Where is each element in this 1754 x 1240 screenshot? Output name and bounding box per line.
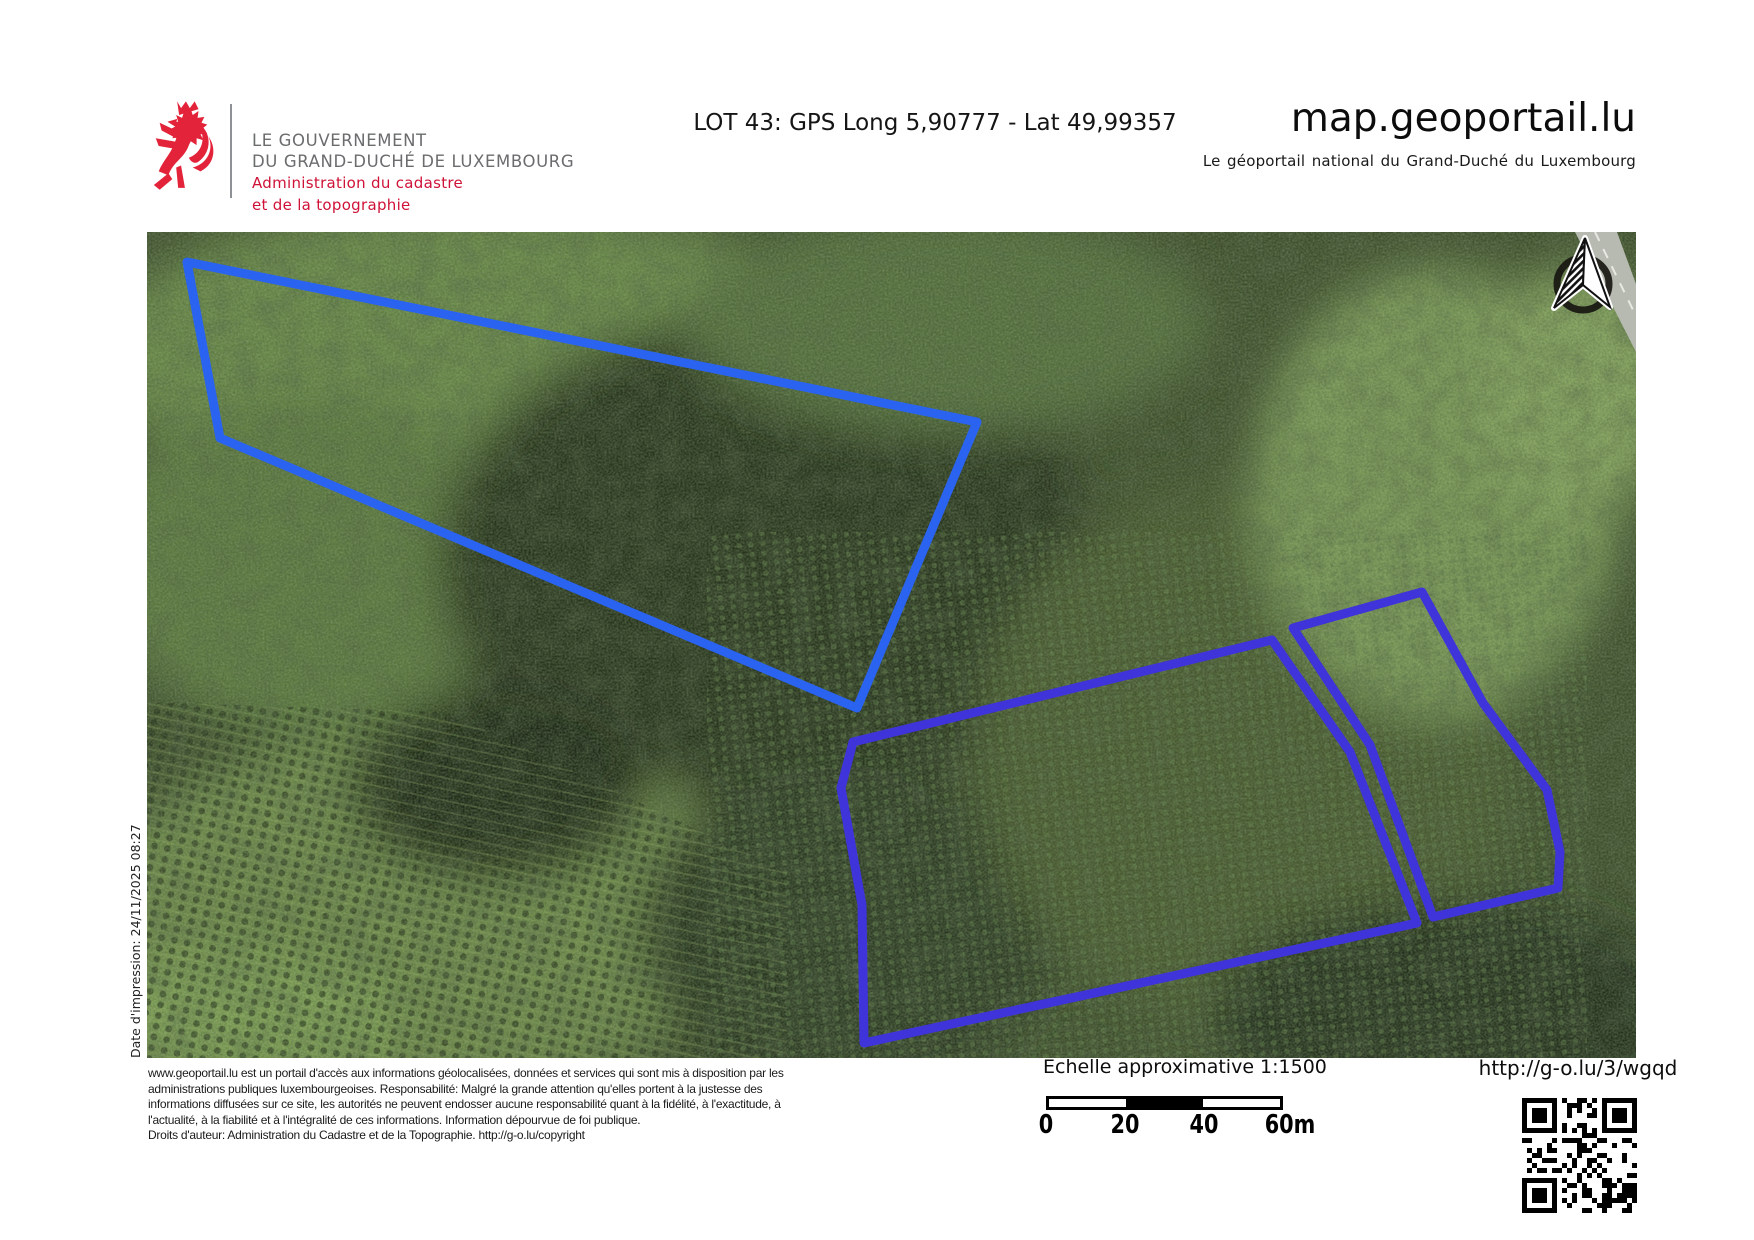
scale-tick-60m: 60m	[1258, 1110, 1322, 1140]
logo-divider	[230, 104, 232, 198]
disclaimer-text: www.geoportail.lu est un portail d'accès…	[148, 1066, 868, 1144]
print-date-label: Date d'impression: 24/11/2025 08:27	[128, 824, 143, 1058]
aerial-map	[147, 232, 1636, 1058]
scale-tick-0: 0	[1014, 1110, 1078, 1140]
disclaimer-line: administrations publiques luxembourgeois…	[148, 1082, 868, 1098]
qr-code	[1522, 1098, 1637, 1213]
share-url: http://g-o.lu/3/wgqd	[1440, 1056, 1716, 1080]
page-title: LOT 43: GPS Long 5,90777 - Lat 49,99357	[600, 110, 1270, 136]
disclaimer-line: l'actualité, à la fiabilité et à l'intég…	[148, 1113, 868, 1129]
gov-dept-line1: Administration du cadastre	[252, 174, 463, 192]
scale-tick-40: 40	[1172, 1110, 1236, 1140]
scale-bar	[1046, 1096, 1283, 1110]
gov-dept-line2: et de la topographie	[252, 196, 411, 214]
gov-name-line1: LE GOUVERNEMENT	[252, 131, 427, 150]
luxembourg-lion-icon	[148, 98, 218, 198]
brand-subtitle: Le géoportail national du Grand-Duché du…	[1100, 152, 1636, 170]
disclaimer-line: informations diffusées sur ce site, les …	[148, 1097, 868, 1113]
scale-label: Echelle approximative 1:1500	[1043, 1056, 1327, 1078]
disclaimer-line: Droits d'auteur: Administration du Cadas…	[148, 1128, 868, 1144]
print-page: LE GOUVERNEMENT DU GRAND-DUCHÉ DE LUXEMB…	[0, 0, 1754, 1240]
disclaimer-line: www.geoportail.lu est un portail d'accès…	[148, 1066, 868, 1082]
scale-tick-20: 20	[1093, 1110, 1157, 1140]
brand-wordmark: map.geoportail.lu	[1180, 96, 1636, 141]
gov-name-line2: DU GRAND-DUCHÉ DE LUXEMBOURG	[252, 152, 574, 171]
